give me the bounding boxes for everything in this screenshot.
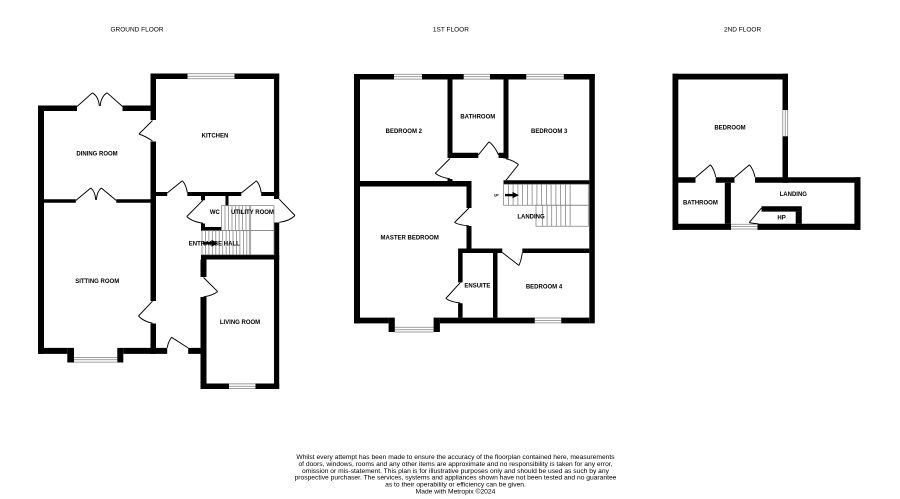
svg-text:BATHROOM: BATHROOM <box>683 200 718 206</box>
svg-text:SITTING ROOM: SITTING ROOM <box>75 279 119 285</box>
svg-text:GROUND FLOOR: GROUND FLOOR <box>110 27 163 34</box>
svg-text:Made with Metropix ©2024: Made with Metropix ©2024 <box>416 487 496 495</box>
svg-text:ENTRANCE HALL: ENTRANCE HALL <box>189 242 240 248</box>
svg-text:DINING ROOM: DINING ROOM <box>76 152 117 158</box>
svg-text:BEDROOM 2: BEDROOM 2 <box>386 129 423 135</box>
svg-text:BATHROOM: BATHROOM <box>460 114 495 120</box>
svg-text:ENSUITE: ENSUITE <box>464 284 490 290</box>
svg-text:MASTER BEDROOM: MASTER BEDROOM <box>381 235 439 241</box>
svg-text:UTILITY ROOM: UTILITY ROOM <box>231 210 274 216</box>
svg-text:2ND FLOOR: 2ND FLOOR <box>724 26 762 33</box>
svg-text:LANDING: LANDING <box>517 215 545 221</box>
svg-text:LIVING ROOM: LIVING ROOM <box>220 320 260 326</box>
svg-text:KITCHEN: KITCHEN <box>202 133 229 139</box>
svg-text:BEDROOM: BEDROOM <box>714 125 745 131</box>
svg-text:LANDING: LANDING <box>780 192 808 198</box>
svg-text:WC: WC <box>210 210 221 216</box>
svg-text:HP: HP <box>777 216 785 222</box>
svg-text:BEDROOM 4: BEDROOM 4 <box>526 284 563 290</box>
svg-text:BEDROOM 3: BEDROOM 3 <box>531 129 568 135</box>
svg-text:1ST FLOOR: 1ST FLOOR <box>433 27 469 34</box>
svg-text:UP: UP <box>494 193 499 197</box>
